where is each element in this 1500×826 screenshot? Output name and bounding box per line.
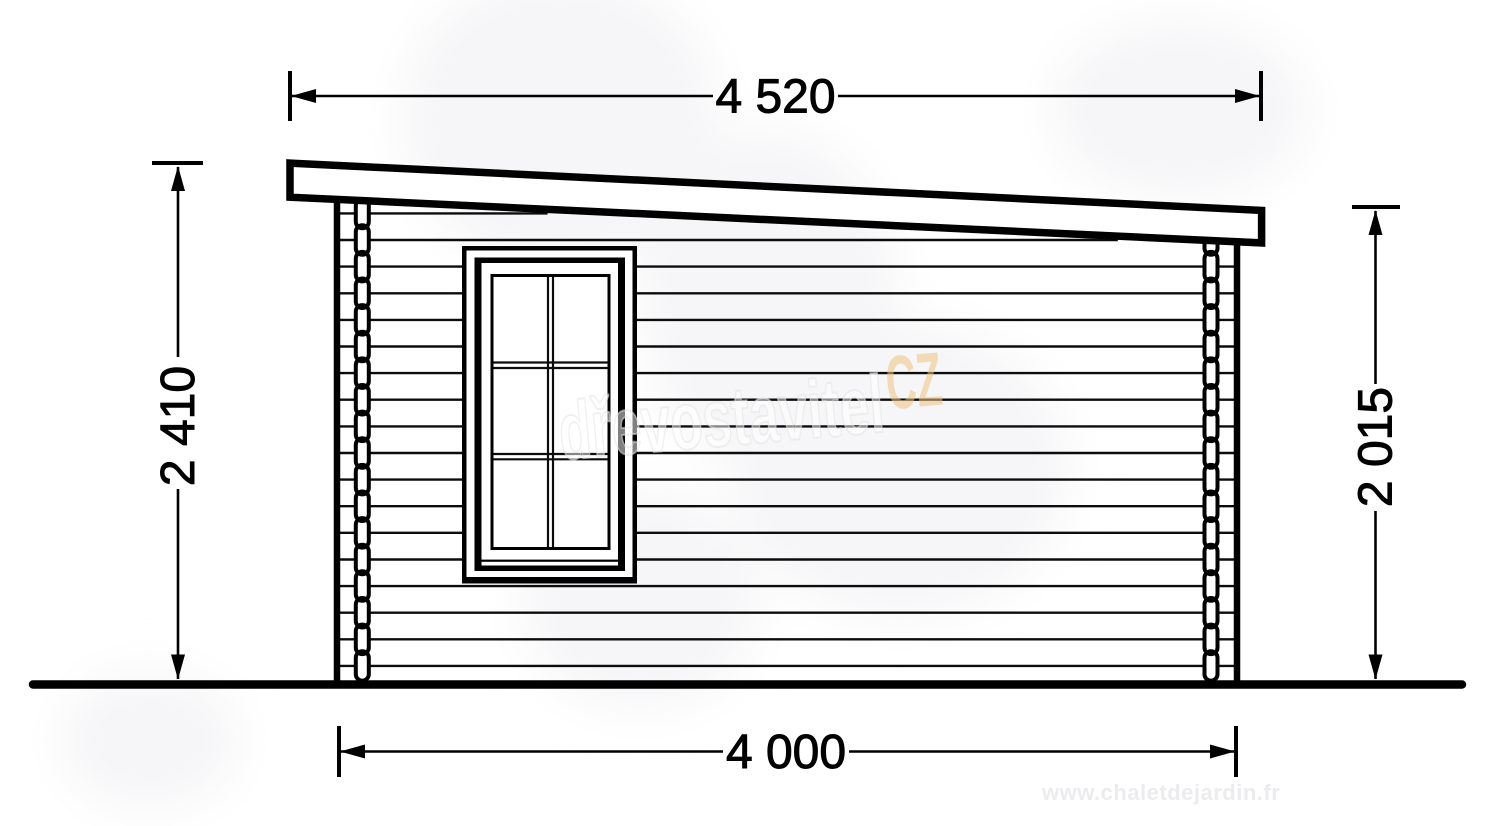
svg-text:www.chaletdejardin.fr: www.chaletdejardin.fr — [1041, 780, 1280, 805]
svg-text:CZ: CZ — [882, 337, 945, 427]
svg-text:4 000: 4 000 — [726, 726, 846, 779]
svg-text:2 410: 2 410 — [152, 366, 205, 486]
svg-text:2 015: 2 015 — [1350, 387, 1403, 507]
svg-text:4 520: 4 520 — [715, 71, 835, 124]
